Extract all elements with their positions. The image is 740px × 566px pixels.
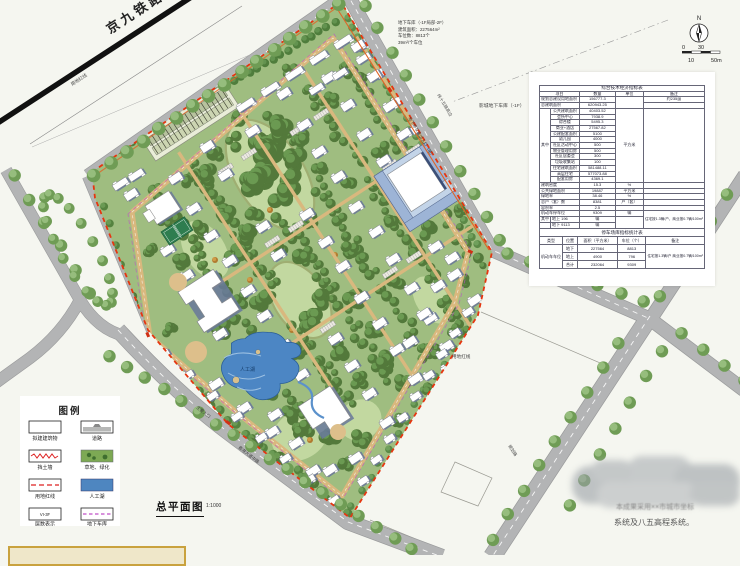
svg-text:影城地下车库（-1F）: 影城地下车库（-1F） [479,102,525,109]
svg-text:50m: 50m [711,58,722,64]
svg-text:挡土墙: 挡土墙 [37,464,52,471]
svg-text:N: N [697,16,701,22]
svg-text:地下车库: 地下车库 [87,521,107,527]
svg-text:拟建建筑物: 拟建建筑物 [32,435,57,442]
svg-text:人工湖: 人工湖 [240,366,255,373]
svg-text:草地、绿化: 草地、绿化 [84,464,109,471]
svg-text:道路: 道路 [92,435,102,442]
svg-text:VI-3F: VI-3F [40,512,51,517]
svg-text:用地红线: 用地红线 [452,353,471,360]
svg-text:人工湖: 人工湖 [89,493,104,500]
svg-text:0: 0 [682,45,685,51]
svg-text:30: 30 [698,45,704,51]
svg-text:10: 10 [688,58,694,64]
svg-text:层数表示: 层数表示 [35,521,55,527]
svg-text:用地红线: 用地红线 [35,493,55,500]
